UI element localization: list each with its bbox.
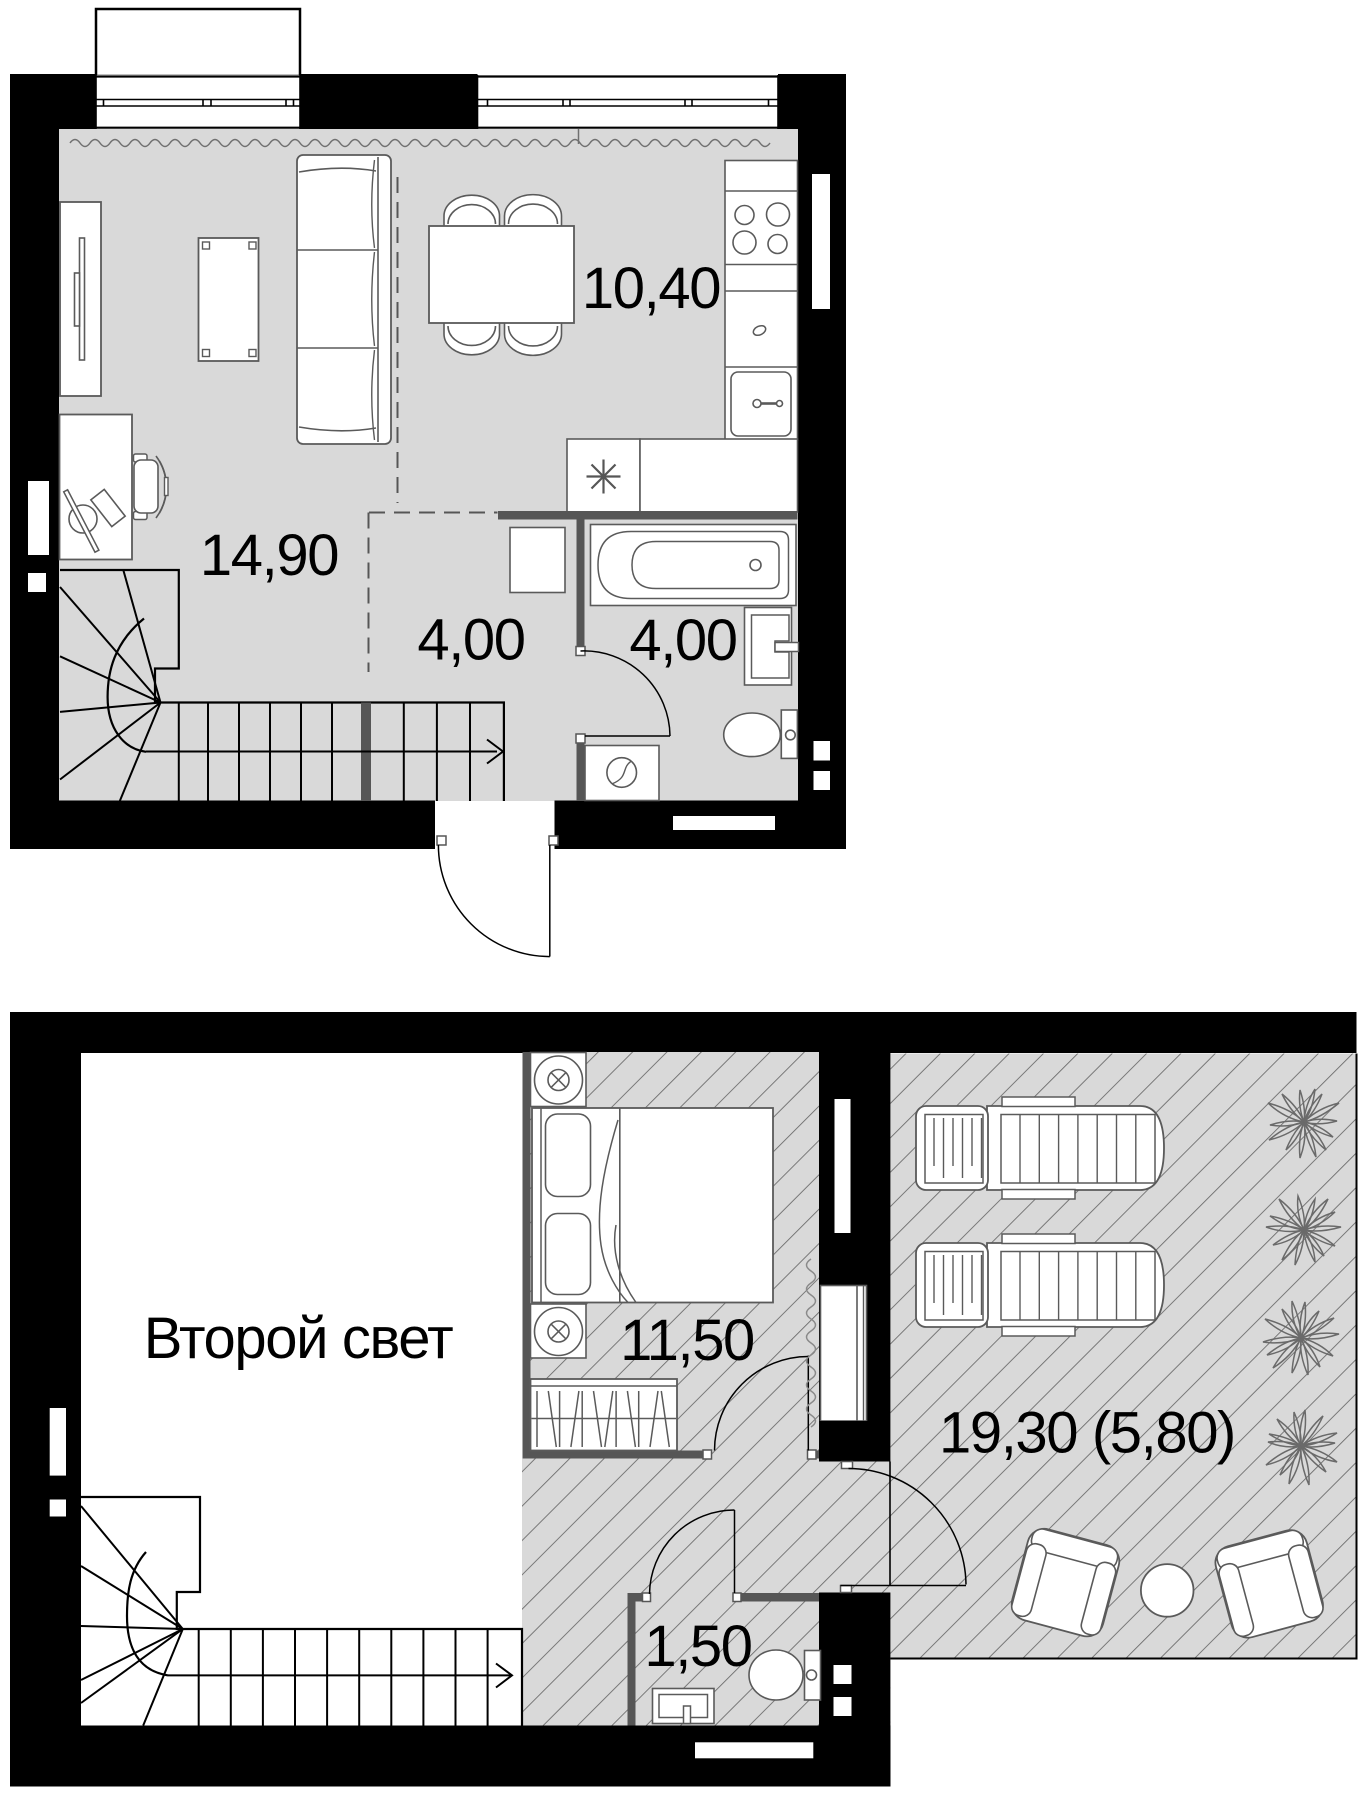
svg-text:10,40: 10,40 xyxy=(582,256,720,321)
svg-text:1,50: 1,50 xyxy=(644,1614,751,1679)
svg-text:4,00: 4,00 xyxy=(417,608,524,673)
svg-text:11,50: 11,50 xyxy=(620,1308,754,1373)
svg-text:19,30 (5,80): 19,30 (5,80) xyxy=(939,1401,1235,1466)
svg-text:Второй свет: Второй свет xyxy=(144,1306,453,1371)
svg-text:4,00: 4,00 xyxy=(629,608,736,673)
svg-text:14,90: 14,90 xyxy=(200,523,338,588)
